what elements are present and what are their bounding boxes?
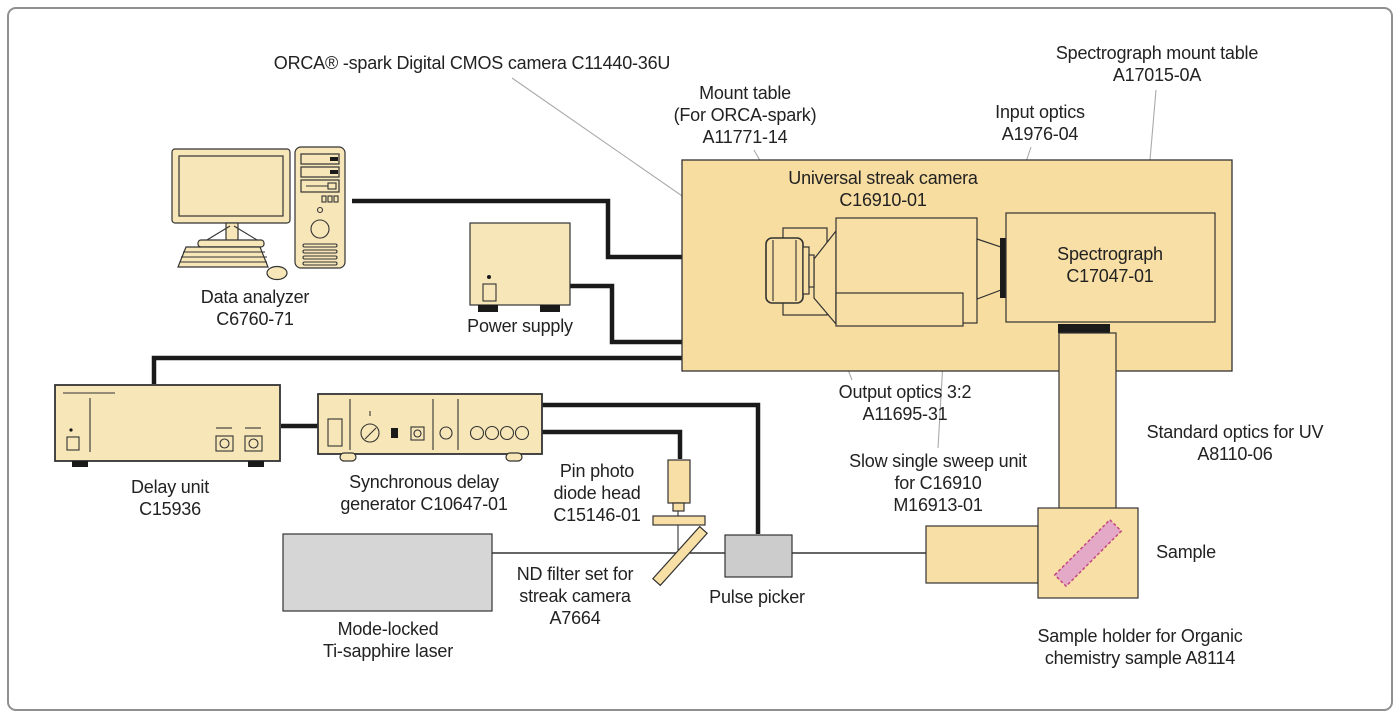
- orca-camera-label: ORCA® -spark Digital CMOS camera C11440-…: [274, 52, 670, 74]
- nd-filter-label: ND filter set for streak camera A7664: [517, 563, 634, 629]
- sweep-unit-box: [836, 293, 963, 326]
- label-line: C15936: [131, 498, 209, 520]
- input-optics-label: Input optics A1976-04: [995, 101, 1085, 145]
- label-line: Pin photo: [553, 460, 640, 482]
- label-line: C15146-01: [553, 504, 640, 526]
- label-line: ND filter set for: [517, 563, 634, 585]
- data-analyzer-label: Data analyzer C6760-71: [201, 286, 309, 330]
- output-optics-label: Output optics 3:2 A11695-31: [839, 381, 972, 425]
- label-line: Power supply: [467, 315, 573, 337]
- label-line: A11771-14: [674, 126, 817, 148]
- spectrograph-coupling-bar: [1058, 324, 1110, 333]
- label-line: Slow single sweep unit: [849, 450, 1027, 472]
- delay-unit-led: [69, 428, 72, 431]
- label-line: streak camera: [517, 585, 634, 607]
- label-line: Sample: [1156, 541, 1216, 563]
- input-optics-trapezoid: [977, 239, 1001, 299]
- power-supply-led: [487, 275, 491, 279]
- orca-camera-body: [766, 238, 803, 303]
- sweep-unit-label: Slow single sweep unit for C16910 M16913…: [849, 450, 1027, 516]
- uv-optics-label: Standard optics for UV A8110-06: [1147, 421, 1324, 465]
- delay-unit-label: Delay unit C15936: [131, 476, 209, 520]
- pulse-picker-box: [725, 535, 792, 577]
- pin-diode-connector: [673, 503, 684, 511]
- mount-table-label: Mount table (For ORCA-spark) A11771-14: [674, 82, 817, 148]
- orca-lens-ring-2: [809, 255, 814, 287]
- sample-holder-label: Sample holder for Organic chemistry samp…: [1037, 625, 1242, 669]
- label-line: chemistry sample A8114: [1037, 647, 1242, 669]
- diagram-canvas: ORCA® -spark Digital CMOS camera C11440-…: [0, 0, 1400, 718]
- power-supply-foot-left: [478, 305, 498, 312]
- label-line: Pulse picker: [709, 586, 805, 608]
- delay-unit-foot-left: [72, 461, 88, 467]
- laser-box: [283, 534, 492, 611]
- sync-generator-label: Synchronous delay generator C10647-01: [340, 471, 507, 515]
- delay-unit-box: [55, 385, 280, 461]
- label-line: Input optics: [995, 101, 1085, 123]
- label-line: Standard optics for UV: [1147, 421, 1324, 443]
- label-line: Mount table: [674, 82, 817, 104]
- label-line: Data analyzer: [201, 286, 309, 308]
- label-line: Sample holder for Organic: [1037, 625, 1242, 647]
- label-line: A1976-04: [995, 123, 1085, 145]
- uv-optics-column: [1059, 333, 1116, 510]
- label-line: Delay unit: [131, 476, 209, 498]
- tower-drive-slot-2: [330, 170, 338, 174]
- label-line: Output optics 3:2: [839, 381, 972, 403]
- orca-lens-ring-1: [803, 247, 809, 294]
- label-line: A11695-31: [839, 403, 972, 425]
- leader-spectrograph-mount: [1150, 90, 1156, 160]
- label-line: for C16910: [849, 472, 1027, 494]
- power-supply-box: [470, 223, 570, 305]
- label-line: generator C10647-01: [340, 493, 507, 515]
- power-supply-label: Power supply: [467, 315, 573, 337]
- sample-holder-arm: [926, 526, 1038, 583]
- sync-generator-box: [318, 394, 542, 454]
- sample-label: Sample: [1156, 541, 1216, 563]
- label-line: Mode-locked: [323, 618, 453, 640]
- spectrograph-mount-label: Spectrograph mount table A17015-0A: [1056, 42, 1258, 86]
- label-line: diode head: [553, 482, 640, 504]
- label-line: ORCA® -spark Digital CMOS camera C11440-…: [274, 52, 670, 74]
- label-line: C16910-01: [788, 189, 977, 211]
- label-line: C6760-71: [201, 308, 309, 330]
- label-line: A7664: [517, 607, 634, 629]
- label-line: Synchronous delay: [340, 471, 507, 493]
- label-line: (For ORCA-spark): [674, 104, 817, 126]
- tower-drive-slot-1: [330, 157, 338, 161]
- power-supply-foot-right: [540, 305, 560, 312]
- monitor-stand-neck: [226, 223, 238, 241]
- beamsplitter: [653, 527, 707, 586]
- monitor-stand-base: [198, 240, 264, 247]
- monitor-screen: [179, 156, 283, 216]
- label-line: Spectrograph mount table: [1056, 42, 1258, 64]
- label-line: A17015-0A: [1056, 64, 1258, 86]
- sync-foot-left: [340, 453, 356, 461]
- streak-camera-label: Universal streak camera C16910-01: [788, 167, 977, 211]
- label-line: Universal streak camera: [788, 167, 977, 189]
- delay-unit-foot-right: [248, 461, 264, 467]
- cable-sync-to-pin-diode: [542, 432, 680, 459]
- mouse: [267, 267, 287, 280]
- sync-toggle: [391, 428, 398, 438]
- pin-photo-diode-label: Pin photo diode head C15146-01: [553, 460, 640, 526]
- label-line: M16913-01: [849, 494, 1027, 516]
- label-line: Spectrograph: [1057, 243, 1163, 265]
- label-line: C17047-01: [1057, 265, 1163, 287]
- nd-filter-bar: [653, 516, 705, 525]
- pulse-picker-label: Pulse picker: [709, 586, 805, 608]
- spectrograph-label: Spectrograph C17047-01: [1057, 243, 1163, 287]
- label-line: A8110-06: [1147, 443, 1324, 465]
- laser-label: Mode-locked Ti-sapphire laser: [323, 618, 453, 662]
- label-line: Ti-sapphire laser: [323, 640, 453, 662]
- pin-photo-diode-head: [668, 460, 690, 503]
- sync-foot-right: [506, 453, 522, 461]
